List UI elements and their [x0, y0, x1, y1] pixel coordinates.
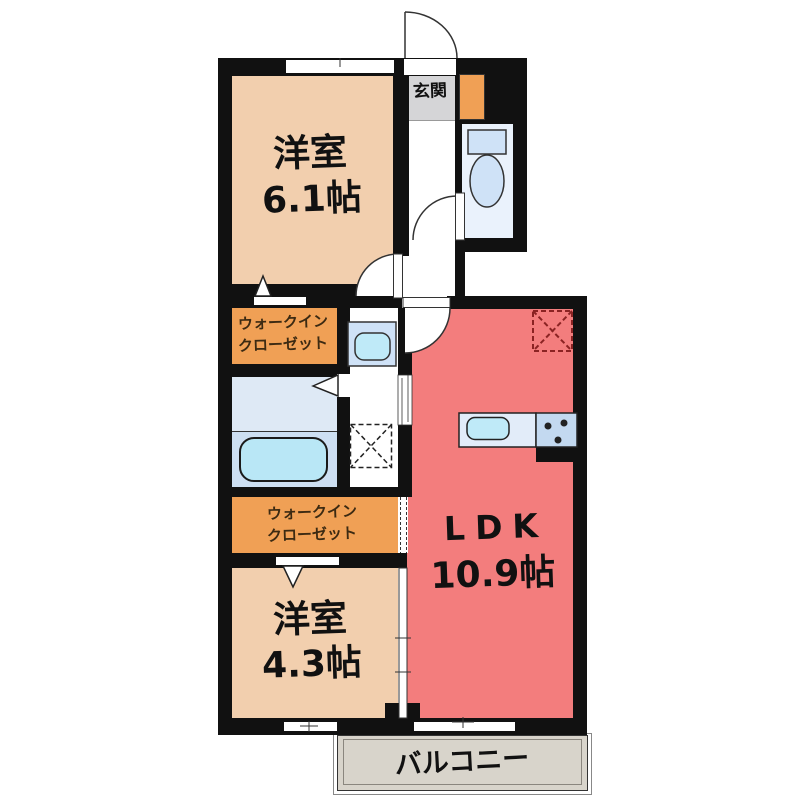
- closet2-label-line2: クローゼット: [267, 526, 357, 544]
- floor-plan: 玄関 洋室 6.1帖 ウォークイン クローゼット ウォークイン クローゼット 洋…: [0, 0, 800, 800]
- closet2-side-partition: [399, 497, 408, 553]
- closet2-door-marker-icon: [283, 566, 303, 587]
- washroom-sliding-door-icon: [398, 375, 412, 425]
- toilet-door-icon: [413, 193, 465, 240]
- bathroom-door-icon: [313, 374, 350, 397]
- toilet-icon: [468, 130, 506, 207]
- bathtub-icon: [240, 438, 327, 481]
- closet1-door-marker-icon: [255, 276, 271, 296]
- entrance-label: 玄関: [413, 83, 448, 101]
- bedroom2-ldk-sliding-wall: [395, 568, 411, 718]
- balcony-label: バルコニー: [394, 745, 530, 779]
- entrance-door-icon: [405, 12, 457, 58]
- kitchen-sink-icon: [467, 418, 509, 440]
- washing-machine-pan-icon: [351, 425, 392, 468]
- closet1-label-line1: ウォークイン: [238, 314, 328, 332]
- fixtures-overlay: [0, 0, 800, 800]
- washbasin-icon: [348, 322, 396, 366]
- bedroom1-door-icon: [356, 254, 403, 298]
- kitchen-counter-icon: [459, 413, 577, 447]
- window-ticks: [300, 58, 474, 732]
- closet1-label-line2: クローゼット: [238, 336, 328, 354]
- closet2-label-line1: ウォークイン: [267, 504, 357, 522]
- refrigerator-space-icon: [533, 311, 572, 351]
- ldk-door-icon: [403, 298, 450, 354]
